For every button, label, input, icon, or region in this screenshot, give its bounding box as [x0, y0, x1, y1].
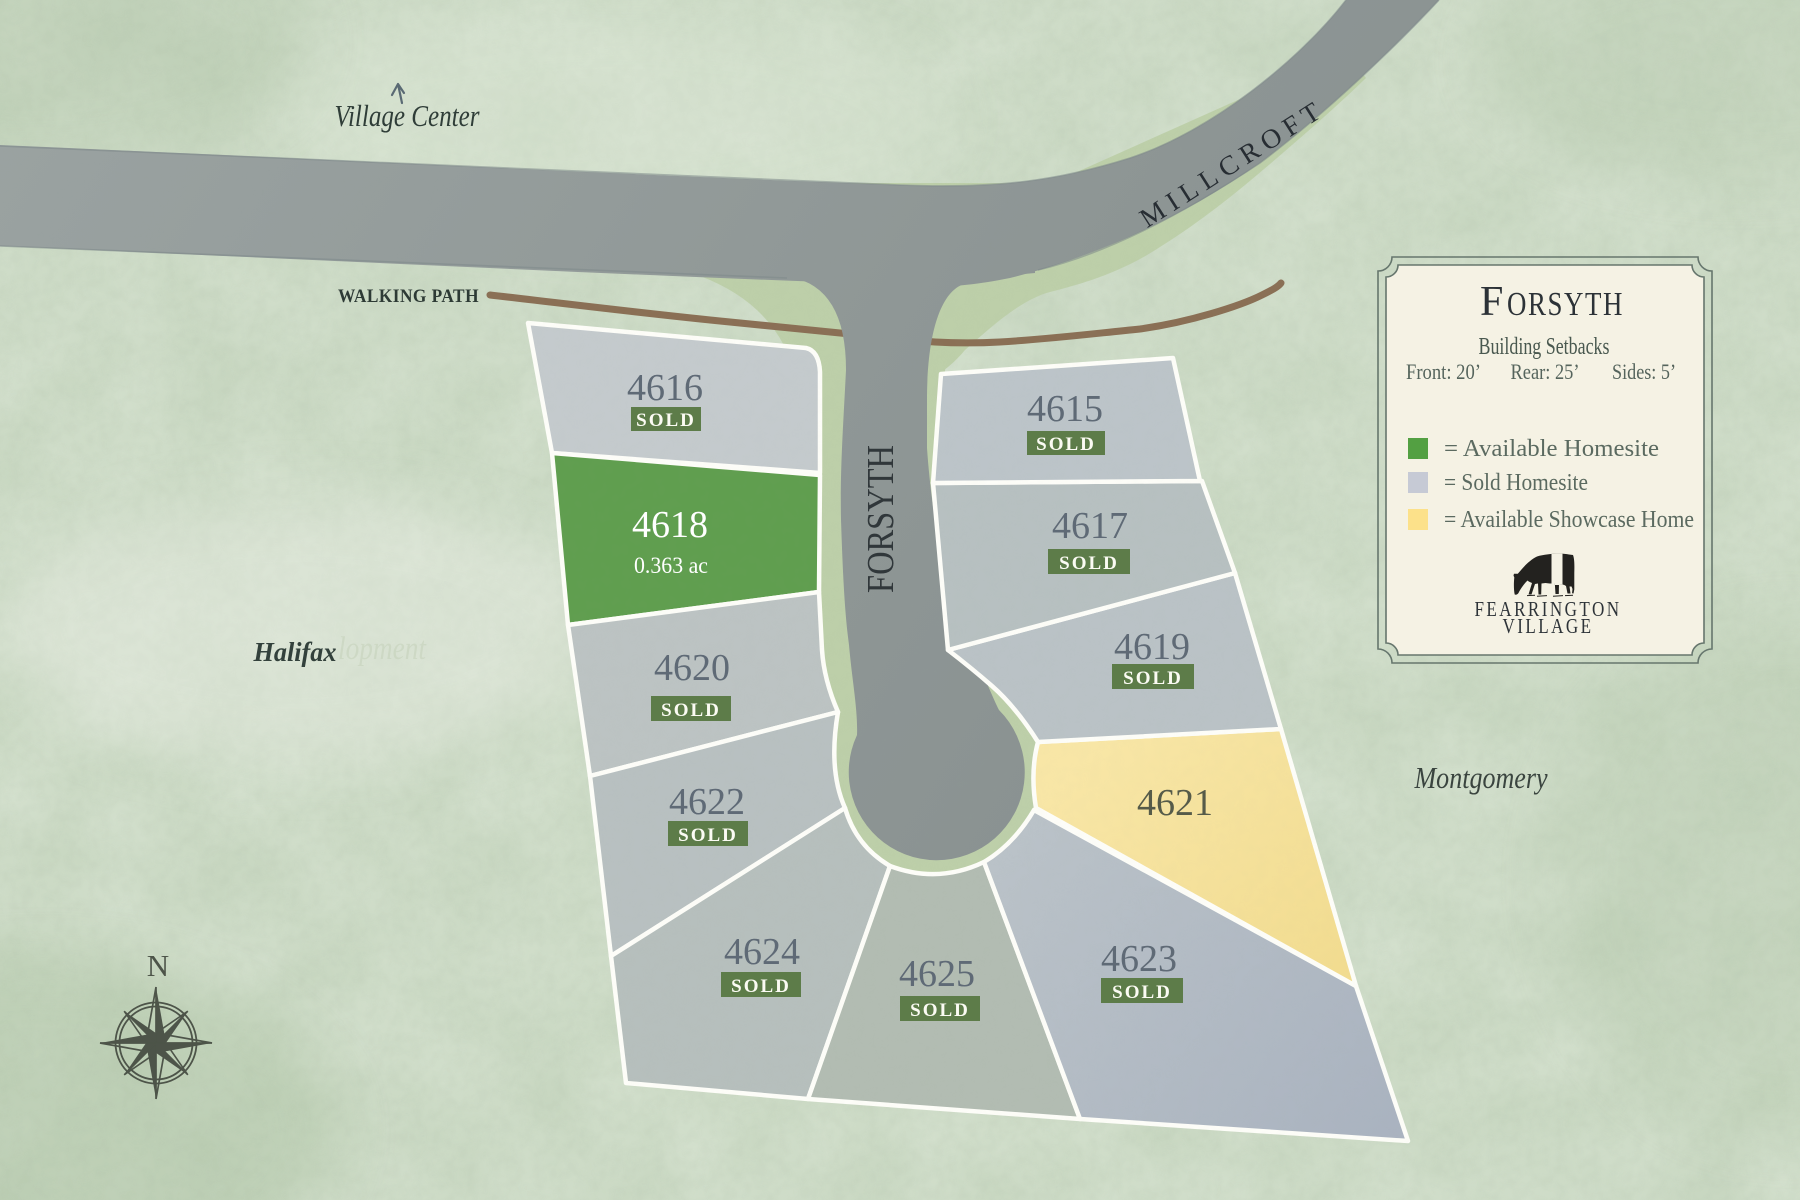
- svg-text:lopment: lopment: [338, 631, 427, 667]
- svg-text:= Sold Homesite: = Sold Homesite: [1444, 470, 1588, 496]
- svg-text:F: F: [1480, 279, 1503, 325]
- svg-text:4619: 4619: [1114, 626, 1190, 668]
- svg-text:SOLD: SOLD: [661, 700, 721, 721]
- svg-text:4623: 4623: [1101, 938, 1177, 980]
- svg-text:4624: 4624: [724, 931, 800, 973]
- svg-text:4618: 4618: [632, 504, 708, 546]
- svg-text:4620: 4620: [654, 647, 730, 689]
- svg-text:SOLD: SOLD: [910, 1000, 970, 1021]
- svg-text:SOLD: SOLD: [678, 825, 738, 846]
- svg-text:4616: 4616: [627, 367, 703, 409]
- svg-text:= Available Homesite: = Available Homesite: [1444, 436, 1659, 462]
- svg-text:4622: 4622: [669, 781, 745, 823]
- svg-text:ORSYTH: ORSYTH: [1507, 286, 1624, 323]
- svg-text:Montgomery: Montgomery: [1414, 760, 1548, 795]
- svg-text:4615: 4615: [1027, 388, 1103, 430]
- svg-text:FORSYTH: FORSYTH: [860, 445, 902, 593]
- svg-text:Building Setbacks: Building Setbacks: [1479, 334, 1610, 360]
- svg-text:SOLD: SOLD: [636, 410, 696, 431]
- svg-text:4625: 4625: [899, 953, 975, 995]
- svg-text:4621: 4621: [1137, 782, 1213, 824]
- svg-text:Front: 20’: Front: 20’: [1406, 359, 1481, 384]
- svg-text:SOLD: SOLD: [1059, 553, 1119, 574]
- svg-text:4617: 4617: [1052, 505, 1128, 547]
- svg-text:Sides: 5’: Sides: 5’: [1612, 359, 1676, 384]
- svg-text:= Available Showcase Home: = Available Showcase Home: [1444, 507, 1694, 533]
- svg-text:WALKING PATH: WALKING PATH: [338, 286, 479, 307]
- svg-text:SOLD: SOLD: [731, 976, 791, 997]
- svg-text:Rear: 25’: Rear: 25’: [1511, 359, 1580, 384]
- svg-text:SOLD: SOLD: [1036, 434, 1096, 455]
- svg-text:VILLAGE: VILLAGE: [1503, 614, 1594, 638]
- svg-text:Village Center: Village Center: [335, 98, 481, 133]
- svg-text:SOLD: SOLD: [1123, 668, 1183, 689]
- svg-text:0.363 ac: 0.363 ac: [634, 553, 708, 578]
- svg-text:SOLD: SOLD: [1112, 982, 1172, 1003]
- svg-text:Halifax: Halifax: [253, 637, 337, 667]
- svg-text:N: N: [147, 948, 169, 983]
